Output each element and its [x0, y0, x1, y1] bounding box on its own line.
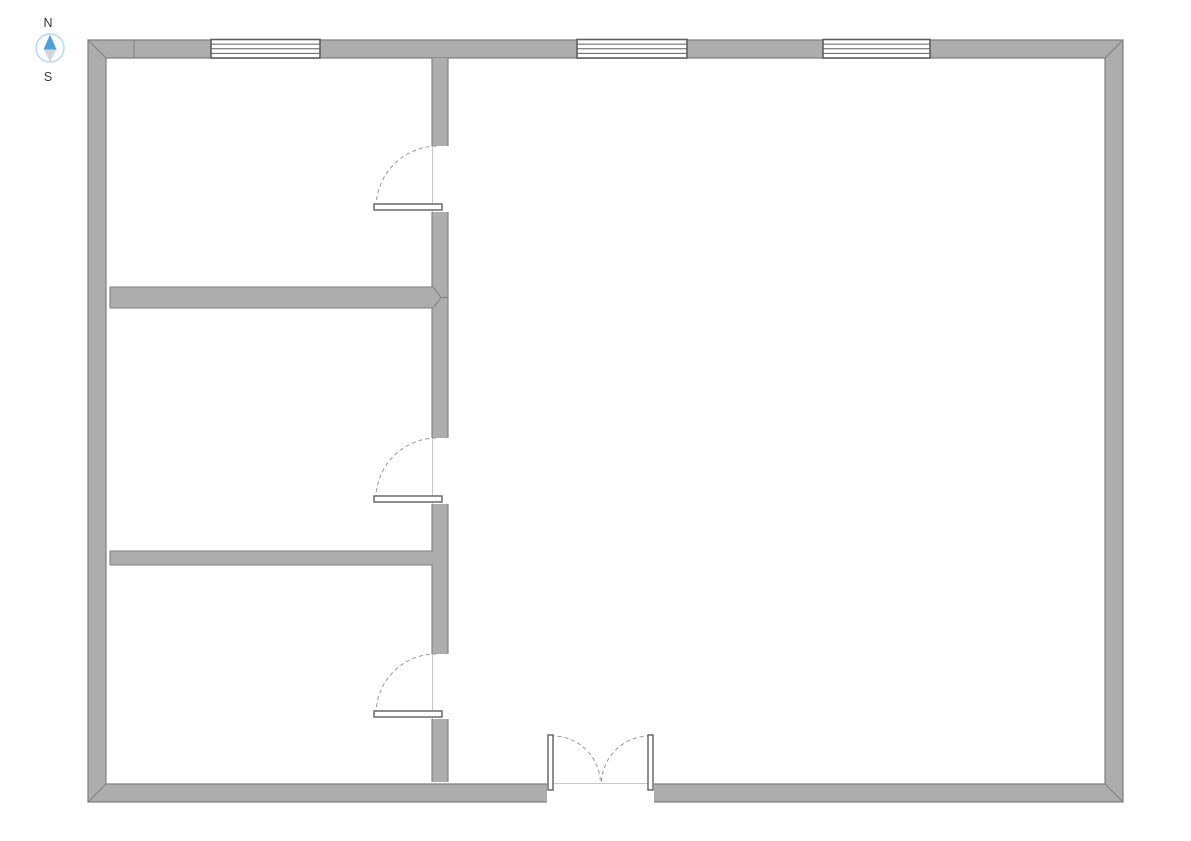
double-door-south-swing-arc-1 — [551, 736, 601, 783]
door-middle-leaf — [374, 496, 442, 502]
exterior-wall — [88, 40, 1123, 802]
door-middle-swing-arc — [376, 438, 438, 499]
door-upper-swing-arc — [376, 146, 438, 207]
compass-north-label: N — [43, 16, 52, 30]
door-lower-leaf — [374, 711, 442, 717]
interior-wall-vertical-top — [432, 58, 448, 146]
interior-wall-vertical-mid-lower — [432, 504, 448, 654]
compass-needle-north-icon — [44, 35, 57, 50]
interior-wall-horizontal-lower — [110, 551, 433, 565]
door-lower-swing-arc — [376, 654, 438, 714]
interior-wall-vertical-bottom — [432, 719, 448, 782]
floorplan-canvas: NS — [0, 0, 1191, 841]
compass-south-label: S — [44, 70, 52, 84]
double-door-south-swing-arc-2 — [602, 736, 651, 783]
compass-needle-south-icon — [44, 50, 57, 63]
door-upper-leaf — [374, 204, 442, 210]
double-door-south-leaf-2 — [648, 735, 653, 790]
interior-wall-horizontal-upper — [110, 287, 434, 308]
interior-wall-vertical-mid-upper — [432, 212, 448, 438]
double-door-south-leaf-1 — [548, 735, 553, 790]
double-door-south-opening — [547, 783, 654, 803]
